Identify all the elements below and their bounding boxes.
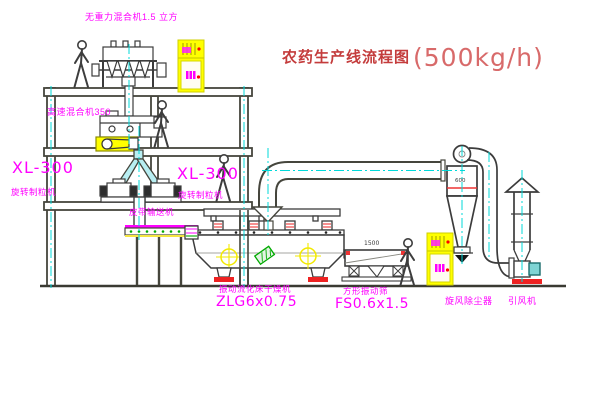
label-belt-conveyor: 皮带输送机 <box>129 208 174 217</box>
induced-draft-fan <box>512 261 542 284</box>
fluid-bed-dryer <box>185 209 358 282</box>
label-sieve-model: FS0.6x1.5 <box>335 297 409 311</box>
granulator-left <box>100 179 137 202</box>
label-cyclone-dimension: 600 <box>455 179 466 185</box>
label-sieve-dimension: 1500 <box>364 241 379 247</box>
cyclone-separator <box>447 146 514 279</box>
label-induced-draft-fan: 引风机 <box>508 297 537 306</box>
control-cabinet-bottom <box>427 233 453 285</box>
label-granulator-right-name: 旋转制粒机 <box>178 191 223 200</box>
person-icon <box>75 41 89 87</box>
control-cabinet-top <box>178 40 204 92</box>
title-text: 农药生产线流程图 <box>282 46 410 70</box>
cad-flow-diagram: 农药生产线流程图 (500kg/h) 无重力混合机1.5 立方 高速混合机350… <box>0 0 600 403</box>
title-capacity: (500kg/h) <box>413 46 544 70</box>
granulator-right <box>144 179 181 202</box>
label-dryer-name: 振动流化床干燥机 <box>219 285 291 294</box>
label-granulator-right-model: XL-300 <box>177 166 239 182</box>
diagram-title: 农药生产线流程图 (500kg/h) <box>282 46 544 70</box>
label-cyclone: 旋风除尘器 <box>445 297 493 306</box>
vibrating-sieve <box>342 250 411 281</box>
label-granulator-left-name: 旋转制粒机 <box>11 188 56 197</box>
label-sieve-name: 方形振动筛 <box>343 287 388 296</box>
label-high-speed-mixer: 高速混合机350 <box>47 108 111 117</box>
label-granulator-left-model: XL-300 <box>12 160 74 176</box>
label-gravity-mixer: 无重力混合机1.5 立方 <box>85 13 178 22</box>
label-dryer-model: ZLG6x0.75 <box>216 295 297 309</box>
